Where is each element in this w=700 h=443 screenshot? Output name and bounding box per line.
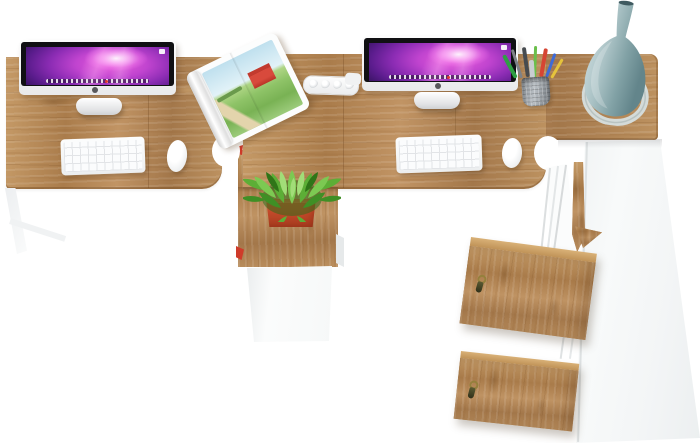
- imac-bezel: [364, 38, 516, 82]
- imac-body: [362, 36, 518, 91]
- imac-stand: [76, 98, 122, 115]
- keyboard-keys: [399, 138, 480, 171]
- imac-stand: [414, 92, 460, 109]
- door-key-icon: [465, 380, 479, 401]
- keyboard-left: [60, 137, 145, 176]
- hub-socket: [309, 79, 318, 88]
- magazine-pages: [185, 31, 312, 150]
- keyboard-right: [395, 135, 482, 174]
- screen-widget-icon: [501, 45, 507, 50]
- hub-socket: [333, 80, 342, 89]
- magazine: [188, 34, 308, 149]
- imac-right: [362, 36, 522, 114]
- key-tassel: [467, 387, 476, 399]
- imac-bezel: [21, 42, 174, 86]
- keyboard-keys: [64, 140, 143, 173]
- screen-widget-icon: [159, 49, 165, 54]
- imac-body: [19, 40, 176, 95]
- mesh-cup: [521, 76, 551, 107]
- pedestal-front-panel: [243, 266, 335, 342]
- hub-socket: [321, 80, 330, 89]
- magazine-spread: [185, 31, 312, 150]
- cabinet-divider-line: [560, 335, 565, 359]
- vase: [572, 0, 667, 130]
- apple-logo-icon: [435, 83, 441, 89]
- plant: [243, 134, 341, 222]
- apple-logo-icon: [92, 87, 98, 93]
- product-photo-stage: [0, 0, 700, 443]
- dock-bar: [389, 75, 491, 79]
- imac-screen-wallpaper: [369, 43, 511, 81]
- cable-hub-connector: [345, 73, 362, 86]
- photo-red-barn: [247, 63, 276, 89]
- imac-screen-wallpaper: [26, 47, 169, 85]
- dock-bar: [46, 79, 149, 83]
- under-desk-shadow: [558, 139, 662, 148]
- cabinet-door-upper: [459, 237, 596, 340]
- cabinet-door-lower: [454, 351, 580, 431]
- wood-seam: [343, 54, 344, 188]
- cabinet-divider-line: [569, 337, 574, 359]
- pencil-cup: [511, 44, 561, 108]
- imac-left: [19, 40, 179, 118]
- key-tassel: [475, 281, 484, 293]
- dock-red-icon: [105, 80, 108, 83]
- pedestal-side-panel: [336, 234, 344, 267]
